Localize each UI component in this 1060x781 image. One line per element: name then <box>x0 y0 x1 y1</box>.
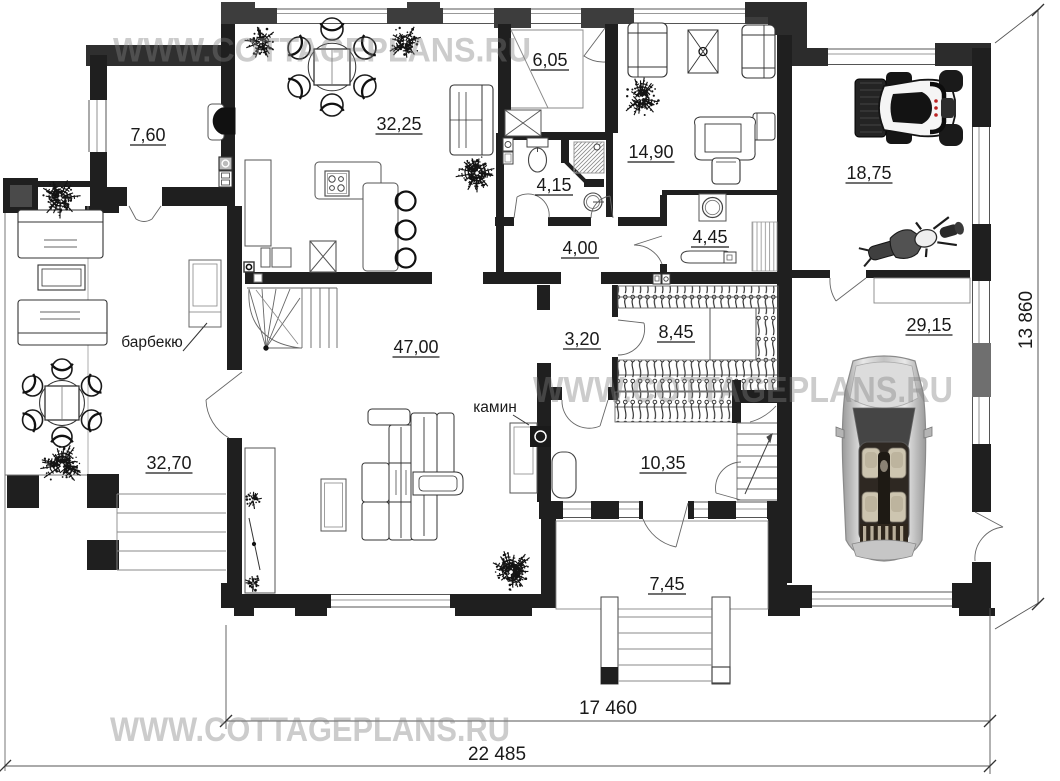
svg-text:3,20: 3,20 <box>564 329 599 349</box>
svg-text:4,45: 4,45 <box>692 227 727 247</box>
svg-text:4,15: 4,15 <box>536 175 571 195</box>
svg-text:8,45: 8,45 <box>658 322 693 342</box>
svg-text:13 860: 13 860 <box>1016 291 1037 349</box>
svg-text:29,15: 29,15 <box>906 315 951 335</box>
svg-text:камин: камин <box>473 399 517 416</box>
svg-text:6,05: 6,05 <box>532 50 567 70</box>
svg-text:WWW.COTTAGEPLANS.RU: WWW.COTTAGEPLANS.RU <box>110 711 510 749</box>
svg-text:7,45: 7,45 <box>649 574 684 594</box>
svg-text:WWW.COTTAGEPLANS.RU: WWW.COTTAGEPLANS.RU <box>533 369 953 410</box>
svg-text:10,35: 10,35 <box>640 453 685 473</box>
svg-text:47,00: 47,00 <box>393 337 438 357</box>
svg-text:32,25: 32,25 <box>376 114 421 134</box>
svg-text:WWW.COTTAGEPLANS.RU: WWW.COTTAGEPLANS.RU <box>113 32 531 70</box>
svg-text:14,90: 14,90 <box>628 142 673 162</box>
svg-text:18,75: 18,75 <box>846 163 891 183</box>
svg-text:4,00: 4,00 <box>562 238 597 258</box>
svg-text:32,70: 32,70 <box>146 453 191 473</box>
svg-text:17 460: 17 460 <box>579 698 637 719</box>
svg-text:7,60: 7,60 <box>130 125 165 145</box>
svg-text:барбекю: барбекю <box>121 334 183 351</box>
